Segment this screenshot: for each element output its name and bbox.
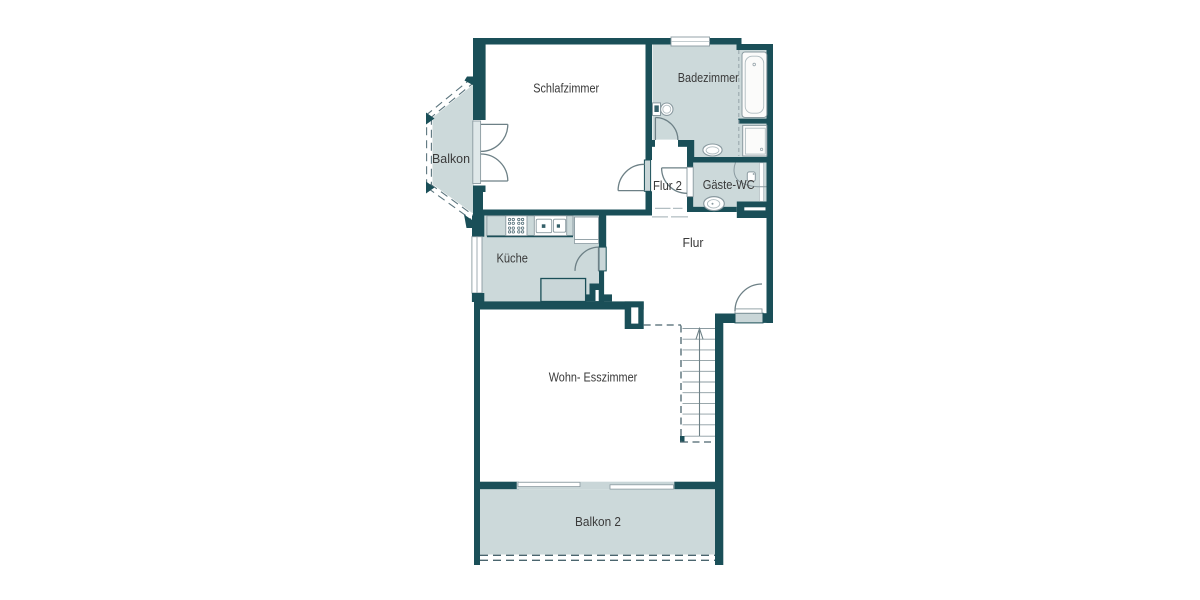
svg-text:Schlafzimmer: Schlafzimmer xyxy=(533,81,600,96)
svg-text:Wohn- Esszimmer: Wohn- Esszimmer xyxy=(549,370,638,385)
svg-text:Badezimmer: Badezimmer xyxy=(678,70,740,85)
svg-text:Flur: Flur xyxy=(683,235,705,250)
svg-text:Balkon 2: Balkon 2 xyxy=(575,514,621,529)
svg-text:Küche: Küche xyxy=(496,251,528,266)
svg-text:Gäste-WC: Gäste-WC xyxy=(703,177,755,192)
svg-text:Balkon: Balkon xyxy=(432,151,470,166)
svg-text:Flur 2: Flur 2 xyxy=(653,178,682,193)
